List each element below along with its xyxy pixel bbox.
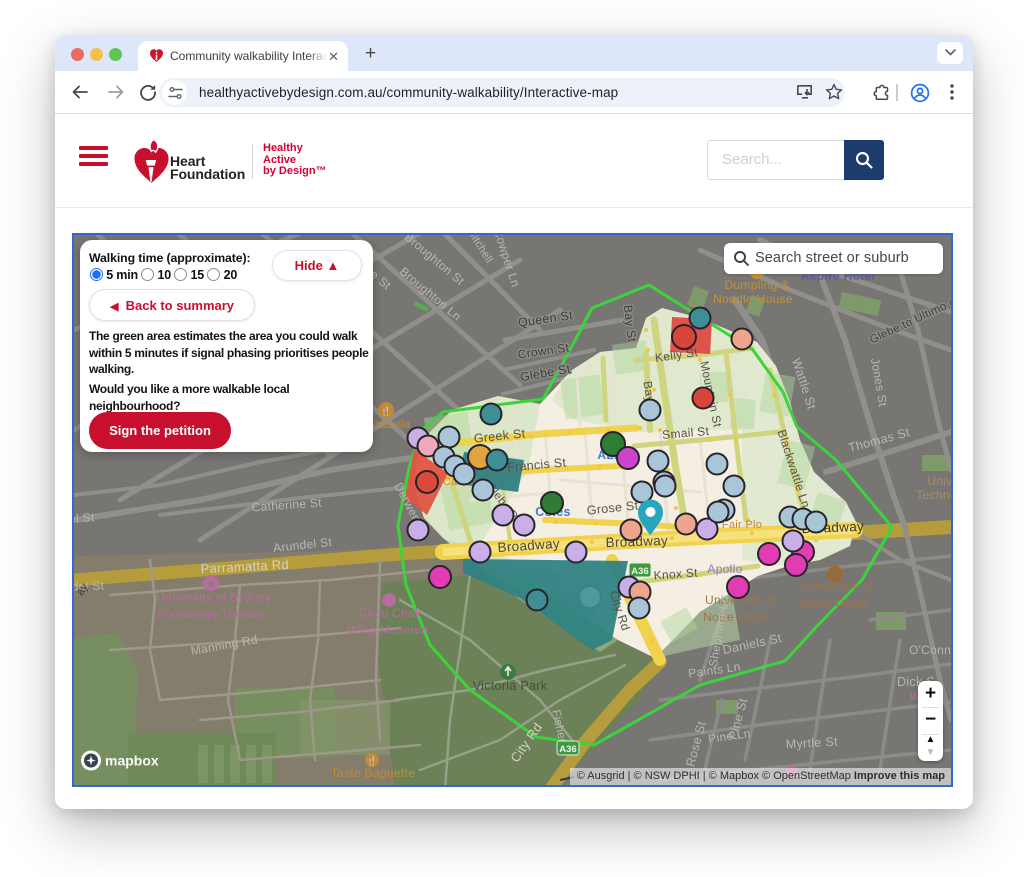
- svg-text:Victoria Park: Victoria Park: [473, 679, 548, 693]
- svg-text:mapbox: mapbox: [105, 753, 159, 769]
- svg-text:Wing Museum: Wing Museum: [348, 623, 428, 637]
- svg-text:Myrtle St: Myrtle St: [785, 735, 838, 752]
- svg-text:e: e: [832, 570, 838, 581]
- svg-text:■: ■: [208, 579, 213, 589]
- svg-text:Footbridge Theatre: Footbridge Theatre: [157, 607, 264, 621]
- svg-text:Taste Baguette: Taste Baguette: [331, 766, 415, 780]
- svg-text:Univ: Univ: [927, 474, 951, 488]
- svg-text:University of Sydney: University of Sydney: [156, 590, 271, 604]
- svg-text:Technol: Technol: [916, 488, 951, 502]
- svg-text:Apollo: Apollo: [707, 562, 742, 576]
- svg-text:el St: el St: [74, 510, 95, 526]
- svg-text:Noodle House: Noodle House: [713, 292, 793, 306]
- svg-text:A36: A36: [631, 566, 648, 577]
- svg-text:O'Conn: O'Conn: [909, 643, 951, 657]
- svg-text:istabella: istabella: [367, 419, 411, 431]
- svg-text:Dumpling &: Dumpling &: [724, 278, 789, 292]
- svg-text:A36: A36: [559, 744, 576, 755]
- svg-text:🍴: 🍴: [366, 755, 377, 767]
- svg-text:Notre Dame: Notre Dame: [801, 596, 869, 610]
- svg-text:Chau Chak: Chau Chak: [359, 606, 422, 620]
